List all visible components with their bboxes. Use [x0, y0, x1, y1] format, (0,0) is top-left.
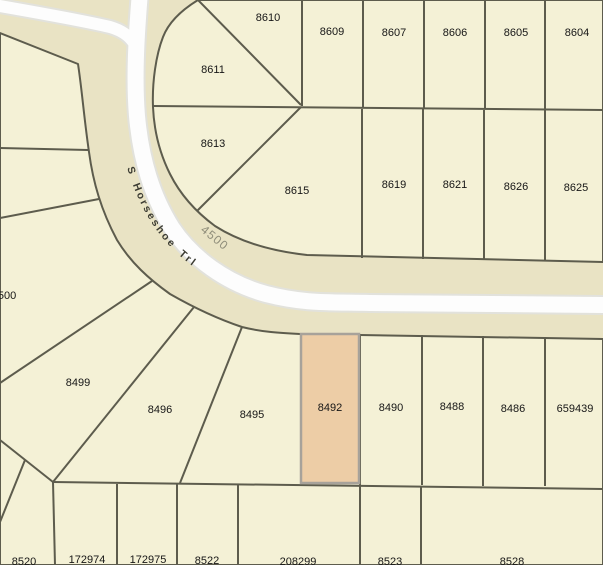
parcel-label-8621: 8621	[443, 179, 467, 191]
parcel-label-8490: 8490	[379, 402, 403, 414]
map-viewport[interactable]: S Horseshoe Trl 4500 8610 8609 8607 8606…	[0, 0, 603, 565]
parcel-label-172975: 172975	[130, 554, 167, 565]
parcel-label-8615: 8615	[285, 185, 309, 197]
parcel-label-8486: 8486	[501, 403, 525, 415]
parcel-label-8609: 8609	[320, 26, 344, 38]
parcel-block-north	[153, 0, 603, 262]
parcel-label-8522: 8522	[195, 555, 219, 565]
parcel-map: S Horseshoe Trl 4500 8610 8609 8607 8606…	[0, 0, 603, 565]
parcel-label-8495: 8495	[240, 409, 264, 421]
parcel-label-8610: 8610	[256, 12, 280, 24]
parcel-label-8499: 8499	[66, 377, 90, 389]
parcel-label-8611: 8611	[201, 64, 225, 76]
parcel-label-8613: 8613	[201, 138, 225, 150]
parcel-label-8488: 8488	[440, 401, 464, 413]
parcel-label-8604: 8604	[565, 27, 589, 39]
parcel-label-8523: 8523	[378, 556, 402, 565]
parcel-label-8520: 8520	[12, 556, 36, 565]
parcel-label-8606: 8606	[443, 27, 467, 39]
parcel-label-8625: 8625	[564, 182, 588, 194]
parcel-label-8492: 8492	[318, 402, 342, 414]
parcel-label-8626: 8626	[504, 181, 528, 193]
parcel-label-8619: 8619	[382, 179, 406, 191]
parcel-label-659439: 659439	[557, 403, 594, 415]
parcel-label-8496: 8496	[148, 404, 172, 416]
parcel-label-500: 500	[0, 290, 16, 302]
parcel-label-172974: 172974	[69, 554, 106, 565]
parcel-label-208299: 208299	[280, 556, 317, 565]
parcel-label-8607: 8607	[382, 27, 406, 39]
parcel-label-8528: 8528	[500, 556, 524, 565]
parcel-label-8605: 8605	[504, 27, 528, 39]
